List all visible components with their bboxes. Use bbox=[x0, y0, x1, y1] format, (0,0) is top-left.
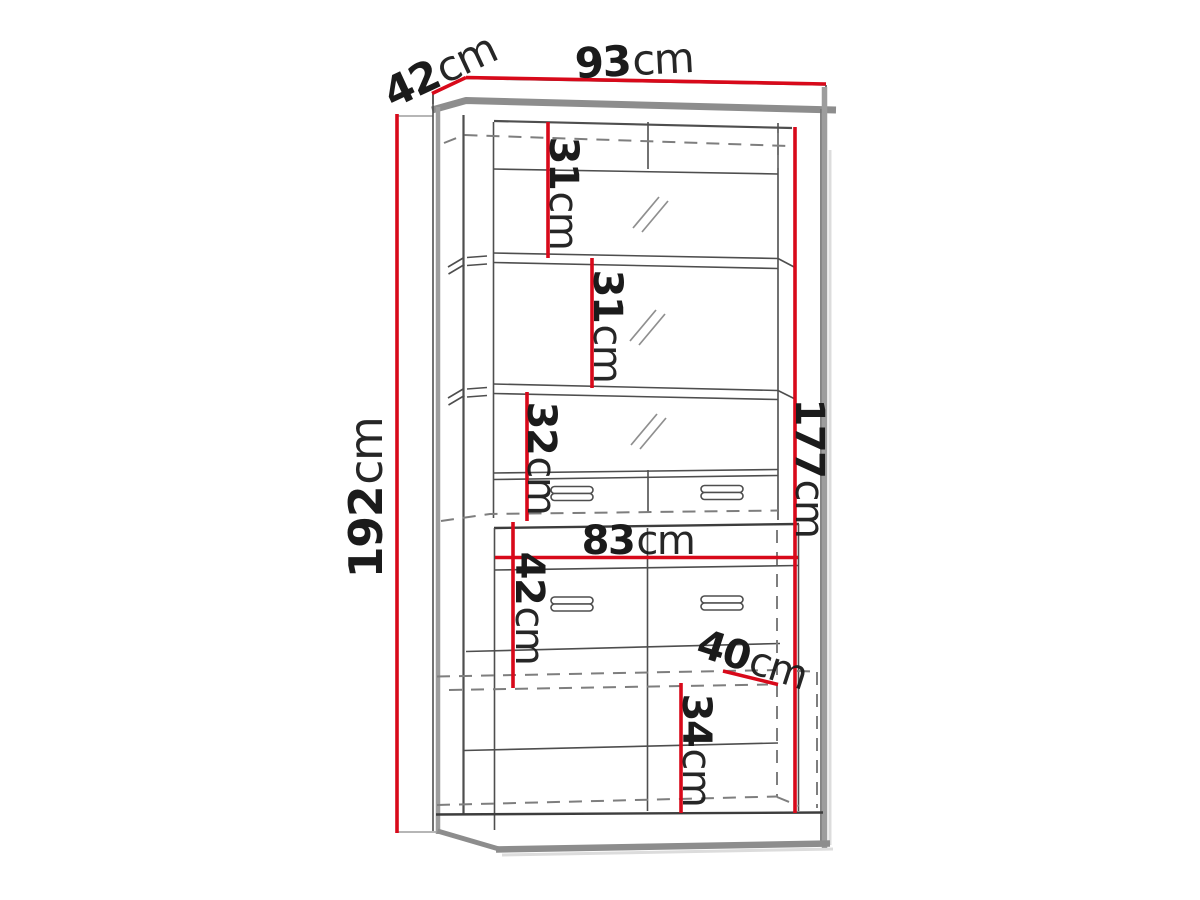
dimension-label-shelf-3: 32cm bbox=[521, 402, 561, 515]
cabinet-line-drawing bbox=[0, 0, 1200, 900]
dimension-label-lower-width: 83cm bbox=[582, 521, 695, 561]
glass-mark-3 bbox=[631, 414, 666, 449]
dimension-label-height: 192cm bbox=[343, 418, 389, 579]
glass-marks bbox=[630, 197, 668, 449]
dimension-label-lower-height: 42cm bbox=[509, 552, 549, 665]
drawer-handle bbox=[551, 597, 593, 611]
drawer-handle bbox=[701, 486, 743, 500]
top-shelf-edge bbox=[493, 169, 778, 174]
dimension-label-shelf-2: 31cm bbox=[587, 270, 627, 383]
cabinet-carcass bbox=[397, 79, 836, 849]
plinth-chamfer bbox=[438, 831, 500, 849]
glass-mark-2 bbox=[630, 310, 665, 345]
dimension-label-shelf-1: 31cm bbox=[543, 137, 583, 250]
glass-mark-1 bbox=[633, 197, 668, 232]
dimension-lines bbox=[397, 78, 826, 834]
dimension-label-door-height: 34cm bbox=[676, 694, 716, 807]
dimension-label-interior-height: 177cm bbox=[789, 399, 829, 538]
drawer-handle bbox=[701, 596, 743, 610]
diagram-canvas: 42cm 93cm 192cm 31cm 31cm 32cm 177cm 83c… bbox=[0, 0, 1200, 900]
door-mid-rail bbox=[464, 743, 778, 751]
cornice-molding bbox=[432, 101, 836, 111]
dimension-label-top-width: 93cm bbox=[574, 37, 695, 85]
shelf-2 bbox=[448, 384, 796, 405]
